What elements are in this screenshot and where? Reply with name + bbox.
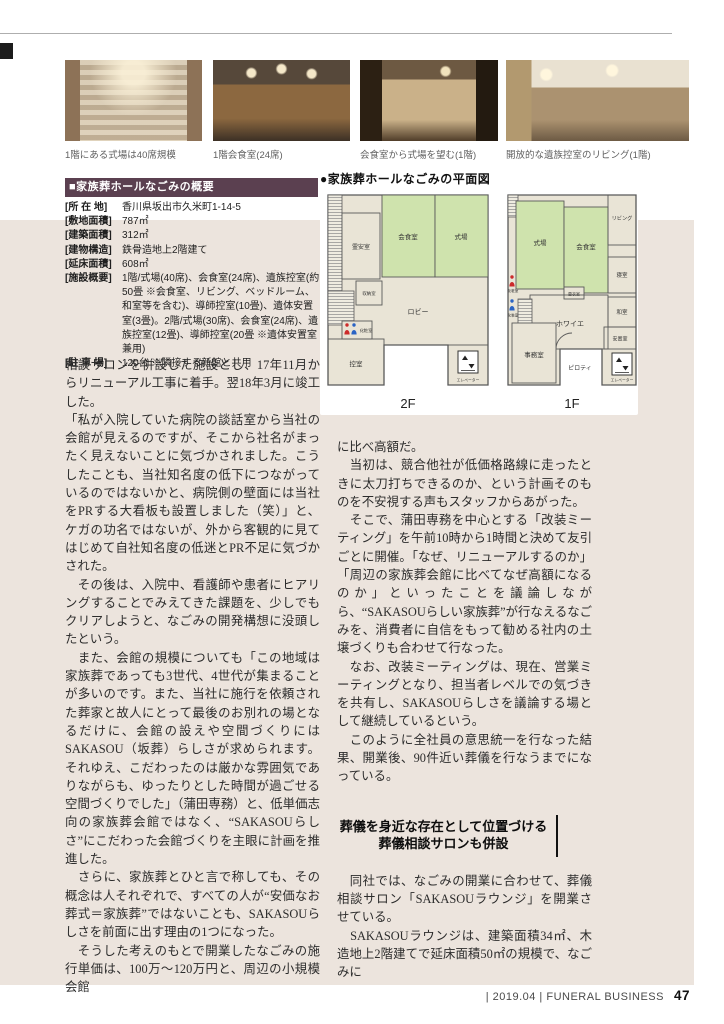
- overview-row-value: 鉄骨造地上2階建て: [122, 244, 321, 258]
- section-heading-line1: 葬儀を身近な存在として位置づける: [337, 818, 550, 835]
- paragraph: さらに、家族葬とひと言で称しても、その概念は人それぞれで、すべての人が“安価なお…: [65, 868, 320, 941]
- room-label: 事務室: [524, 350, 544, 359]
- overview-row: [所 在 地] 香川県坂出市久米町1-14-5: [65, 201, 321, 215]
- room-label: エレベーター: [457, 378, 480, 383]
- room-label: 会食室: [576, 242, 596, 251]
- page-number: 47: [674, 988, 690, 1003]
- paragraph: 相談サロンを併設した施設とし、17年11月からリニューアル工事に着手。翌18年3…: [65, 356, 320, 411]
- overview-table: [所 在 地] 香川県坂出市久米町1-14-5 [敷地面積] 787㎡ [建築面…: [65, 201, 321, 371]
- overview-row-value: 787㎡: [122, 215, 321, 229]
- overview-title: ■家族葬ホールなごみの概要: [65, 178, 318, 197]
- overview-row-label: [建築面積]: [65, 229, 122, 243]
- male-restroom-icon: [510, 299, 513, 302]
- overview-row-value: 608㎡: [122, 258, 321, 272]
- photo-caption: 開放的な遺族控室のリビング(1階): [506, 147, 651, 161]
- elevator-icon: [612, 353, 632, 375]
- article-right-column: に比べ高額だ。 当初は、競合他社が低価格路線に走ったときに太刀打ちできるのか、と…: [337, 438, 592, 981]
- photo-view-to-hall: [360, 60, 498, 141]
- room-label: 化粧室: [508, 288, 519, 293]
- photo-family-living: [506, 60, 689, 141]
- paragraph: そこで、蒲田専務を中心とする「改装ミーティング」を午前10時から1時間と決めて友…: [337, 511, 592, 657]
- room-label: 寝室: [616, 271, 628, 279]
- room-label: 収納室: [362, 290, 376, 297]
- overview-row: [敷地面積] 787㎡: [65, 215, 321, 229]
- paragraph: 当初は、競合他社が低価格路線に走ったときに太刀打ちできるのか、という計画そのもの…: [337, 456, 592, 511]
- room-label: ロビー: [408, 307, 429, 316]
- overview-row-label: [施設概要]: [65, 272, 122, 357]
- room-label: ピロティ: [568, 365, 592, 372]
- room-label: 式場: [534, 238, 548, 247]
- stairs-hatch: [328, 291, 354, 325]
- footer-journal-text: | 2019.04 | FUNERAL BUSINESS: [486, 991, 664, 1003]
- room-label: エレベーター: [611, 378, 634, 383]
- overview-row: [延床面積] 608㎡: [65, 258, 321, 272]
- overview-row-value: 312㎡: [122, 229, 321, 243]
- floorplan-diagram: 霊安室 会食室 式場 収納室 ロビー 化粧室 控室 エレベーター 2F: [320, 187, 638, 415]
- article-left-column: 相談サロンを併設した施設とし、17年11月からリニューアル工事に着手。翌18年3…: [65, 356, 320, 996]
- overview-row-label: [建物構造]: [65, 244, 122, 258]
- top-rule: [0, 33, 672, 34]
- room-label: 式場: [455, 232, 469, 241]
- overview-row-label: [敷地面積]: [65, 215, 122, 229]
- paragraph: 「私が入院していた病院の談話室から当社の会館が見えるのですが、そこから社名がまっ…: [65, 411, 320, 576]
- overview-row: [施設概要] 1階/式場(40席)、会食室(24席)、遺族控室(約50畳 ※会食…: [65, 272, 321, 357]
- photo-caption: 会食室から式場を望む(1階): [360, 147, 476, 161]
- room-label: ホワイエ: [556, 320, 584, 328]
- room-label: 化粧室: [360, 327, 373, 334]
- section-heading: 葬儀を身近な存在として位置づける 葬儀相談サロンも併設: [337, 815, 558, 857]
- room-label: 化粧室: [508, 313, 519, 318]
- overview-row-label: [延床面積]: [65, 258, 122, 272]
- floor-label-2f: 2F: [400, 396, 415, 411]
- overview-row-label: [所 在 地]: [65, 201, 122, 215]
- photo-caption: 1階にある式場は40席規模: [65, 147, 176, 161]
- floor-label-1f: 1F: [564, 396, 579, 411]
- stairs-hatch: [328, 195, 342, 291]
- female-restroom-icon: [345, 323, 348, 326]
- room-label: 霊安室: [352, 243, 370, 251]
- paragraph: 同社では、なごみの開業に合わせて、葬儀相談サロン「SAKASOUラウンジ」を開業…: [337, 872, 592, 927]
- floorplan-title: ●家族葬ホールなごみの平面図: [320, 170, 490, 187]
- room-label: 控室: [350, 359, 364, 368]
- female-restroom-icon: [510, 275, 513, 278]
- corner-print-mark: [0, 43, 13, 59]
- photo-ceremony-hall: [65, 60, 202, 141]
- room-label: 会食室: [398, 232, 418, 241]
- male-restroom-icon: [352, 323, 355, 326]
- room-label: リビング: [612, 214, 633, 222]
- paragraph: このように全社員の意思統一を行なった結果、開業後、90件近い葬儀を行なうまでにな…: [337, 731, 592, 786]
- overview-row: [建物構造] 鉄骨造地上2階建て: [65, 244, 321, 258]
- page-footer: | 2019.04 | FUNERAL BUSINESS47: [0, 988, 690, 1003]
- section-heading-line2: 葬儀相談サロンも併設: [337, 835, 550, 852]
- room-label: 更衣室: [568, 291, 580, 297]
- photo-caption: 1階会食室(24席): [213, 147, 283, 161]
- photo-dining-room: [213, 60, 350, 141]
- paragraph: また、会館の規模についても「この地域は家族葬であっても3世代、4世代が集まること…: [65, 649, 320, 869]
- room-label: 安置室: [612, 336, 627, 343]
- paragraph: その後は、入院中、看護師や患者にヒアリングすることでみえてきた課題を、少しでもク…: [65, 576, 320, 649]
- elevator-icon: [458, 351, 478, 373]
- floorplan-1f: 式場 会食室 リビング 寝室 更衣室 ホワイエ 和室 安置室 化粧室 化粧室 事…: [508, 195, 636, 411]
- paragraph: SAKASOUラウンジは、建築面積34㎡、木造地上2階建てで延床面積50㎡の規模…: [337, 927, 592, 982]
- paragraph: に比べ高額だ。: [337, 438, 592, 456]
- overview-row-value: 香川県坂出市久米町1-14-5: [122, 201, 321, 215]
- overview-row-value: 1階/式場(40席)、会食室(24席)、遺族控室(約50畳 ※会食室、リビング、…: [122, 272, 321, 357]
- floorplan-2f: 霊安室 会食室 式場 収納室 ロビー 化粧室 控室 エレベーター 2F: [328, 195, 488, 411]
- paragraph: なお、改装ミーティングは、現在、営業ミーティングとなり、担当者レベルでの気づきを…: [337, 658, 592, 731]
- floorplan-panel: 霊安室 会食室 式場 収納室 ロビー 化粧室 控室 エレベーター 2F: [320, 187, 638, 415]
- overview-row: [建築面積] 312㎡: [65, 229, 321, 243]
- room-label: 和室: [616, 308, 628, 316]
